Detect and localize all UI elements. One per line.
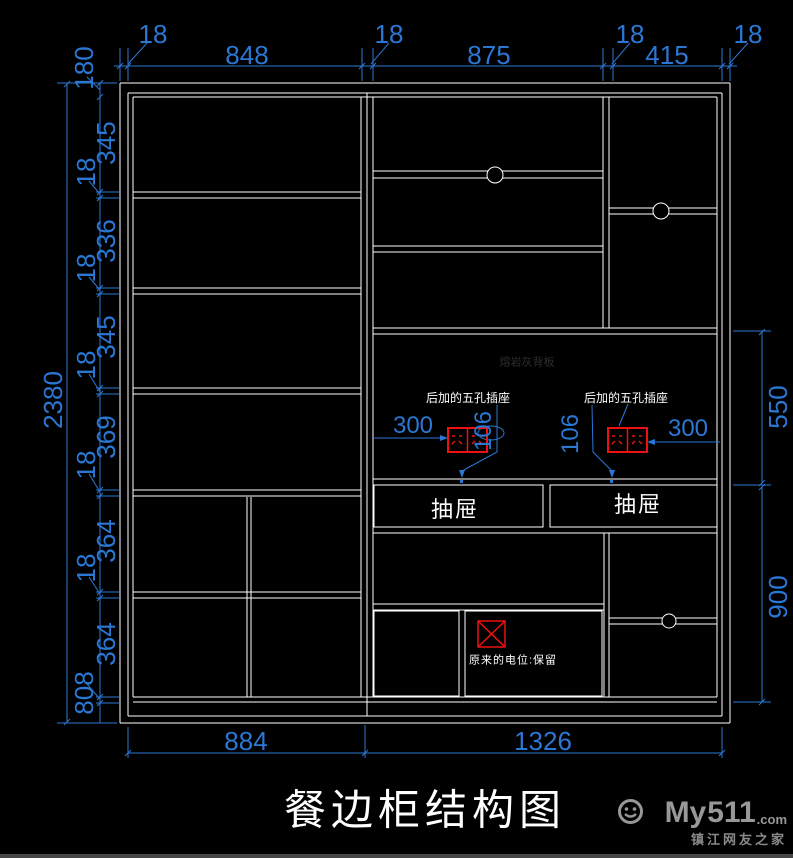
smiley-icon [617,798,644,825]
watermark-com: .com [757,813,787,826]
dim-top-875: 875 [467,42,510,68]
keep-outlet-note: 原来的电位:保留 [469,656,557,667]
added-socket-label-left: 后加的五孔插座 [426,392,510,404]
bottom-edge-strip [0,854,793,858]
dim-socket-300-left: 300 [393,414,433,438]
keep-outlet-symbol [478,621,505,647]
dim-top-18-3: 18 [616,21,645,47]
dim-left-18-4: 18 [73,451,99,480]
cam-circle-1 [487,167,503,183]
added-socket-label-right: 后加的五孔插座 [584,392,668,404]
watermark-511: 511 [707,798,755,828]
dim-top-18-1: 18 [139,21,168,47]
watermark-my: My [665,798,707,828]
dim-bottom-884: 884 [224,728,267,754]
socket-symbol-right [608,428,647,452]
drawer-label-right: 抽屉 [614,494,662,516]
dim-left-18-3: 18 [73,351,99,380]
dim-left-bottom: 808 [71,671,97,714]
drawer-label-left: 抽屉 [431,499,479,521]
dim-right-550: 550 [765,385,791,428]
dim-socket-106-right: 106 [559,414,583,454]
dim-left-18-2: 18 [73,254,99,283]
dim-socket-300-right: 300 [668,417,708,441]
dim-top-415: 415 [645,42,688,68]
cad-drawing-canvas: 18 848 18 875 18 415 18 2380 180 345 18 … [0,0,793,858]
back-panel-note: 熔岩灰背板 [500,358,555,369]
drawing-title: 餐边柜结构图 [284,777,566,838]
cam-circle-3 [662,614,676,628]
dim-left-18-1: 18 [73,158,99,187]
dim-top-18-2: 18 [375,21,404,47]
watermark: My511.com 镇江网友之家 [617,798,787,848]
dim-left-top: 180 [71,46,97,89]
cam-circle-2 [653,203,669,219]
dim-left-364-2: 364 [93,622,119,665]
dim-socket-106-left: 106 [472,411,496,451]
dim-overall-height: 2380 [40,371,66,429]
watermark-tagline: 镇江网友之家 [617,829,787,848]
dim-bottom-1326: 1326 [514,728,572,754]
dim-top-18-4: 18 [734,21,763,47]
dim-right-900: 900 [765,575,791,618]
dim-left-18-5: 18 [73,554,99,583]
dim-top-848: 848 [225,42,268,68]
